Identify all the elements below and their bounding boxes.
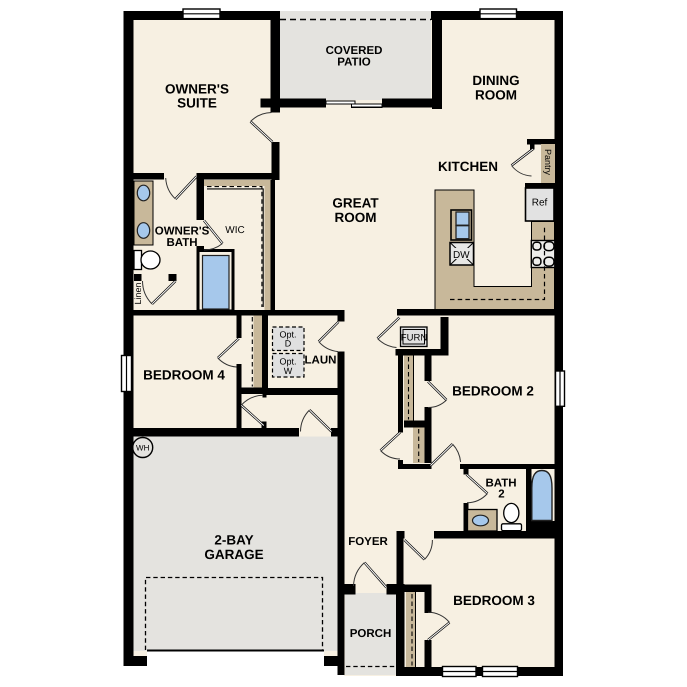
svg-text:OWNER'S: OWNER'S [165, 82, 229, 97]
svg-text:ROOM: ROOM [475, 88, 517, 103]
svg-text:Ref: Ref [532, 198, 548, 209]
svg-text:BEDROOM 2: BEDROOM 2 [452, 384, 534, 399]
svg-text:COVERED: COVERED [326, 45, 383, 57]
svg-text:D: D [285, 339, 292, 349]
svg-text:DW: DW [453, 250, 470, 261]
svg-text:ROOM: ROOM [335, 210, 377, 225]
svg-text:Linen: Linen [133, 282, 143, 304]
svg-text:BEDROOM 3: BEDROOM 3 [453, 593, 535, 608]
svg-text:2-BAY: 2-BAY [214, 533, 253, 548]
svg-text:WIC: WIC [225, 225, 244, 236]
svg-text:2: 2 [498, 489, 504, 501]
svg-text:W: W [284, 366, 293, 376]
svg-text:KITCHEN: KITCHEN [438, 159, 498, 174]
svg-text:BATH: BATH [166, 237, 197, 249]
svg-text:DINING: DINING [472, 73, 519, 88]
svg-text:LAUN: LAUN [305, 355, 337, 367]
svg-text:OWNER'S: OWNER'S [155, 226, 210, 238]
svg-text:PORCH: PORCH [350, 628, 392, 640]
svg-text:GREAT: GREAT [332, 196, 379, 211]
svg-text:FOYER: FOYER [348, 536, 388, 548]
svg-text:WH: WH [136, 444, 150, 453]
svg-text:Opt.: Opt. [279, 357, 296, 367]
svg-text:BEDROOM 4: BEDROOM 4 [143, 368, 225, 383]
svg-text:GARAGE: GARAGE [204, 547, 263, 562]
svg-text:Pantry: Pantry [543, 149, 553, 176]
svg-text:PATIO: PATIO [337, 57, 370, 69]
svg-text:FURN: FURN [401, 333, 428, 344]
svg-text:SUITE: SUITE [177, 96, 217, 111]
